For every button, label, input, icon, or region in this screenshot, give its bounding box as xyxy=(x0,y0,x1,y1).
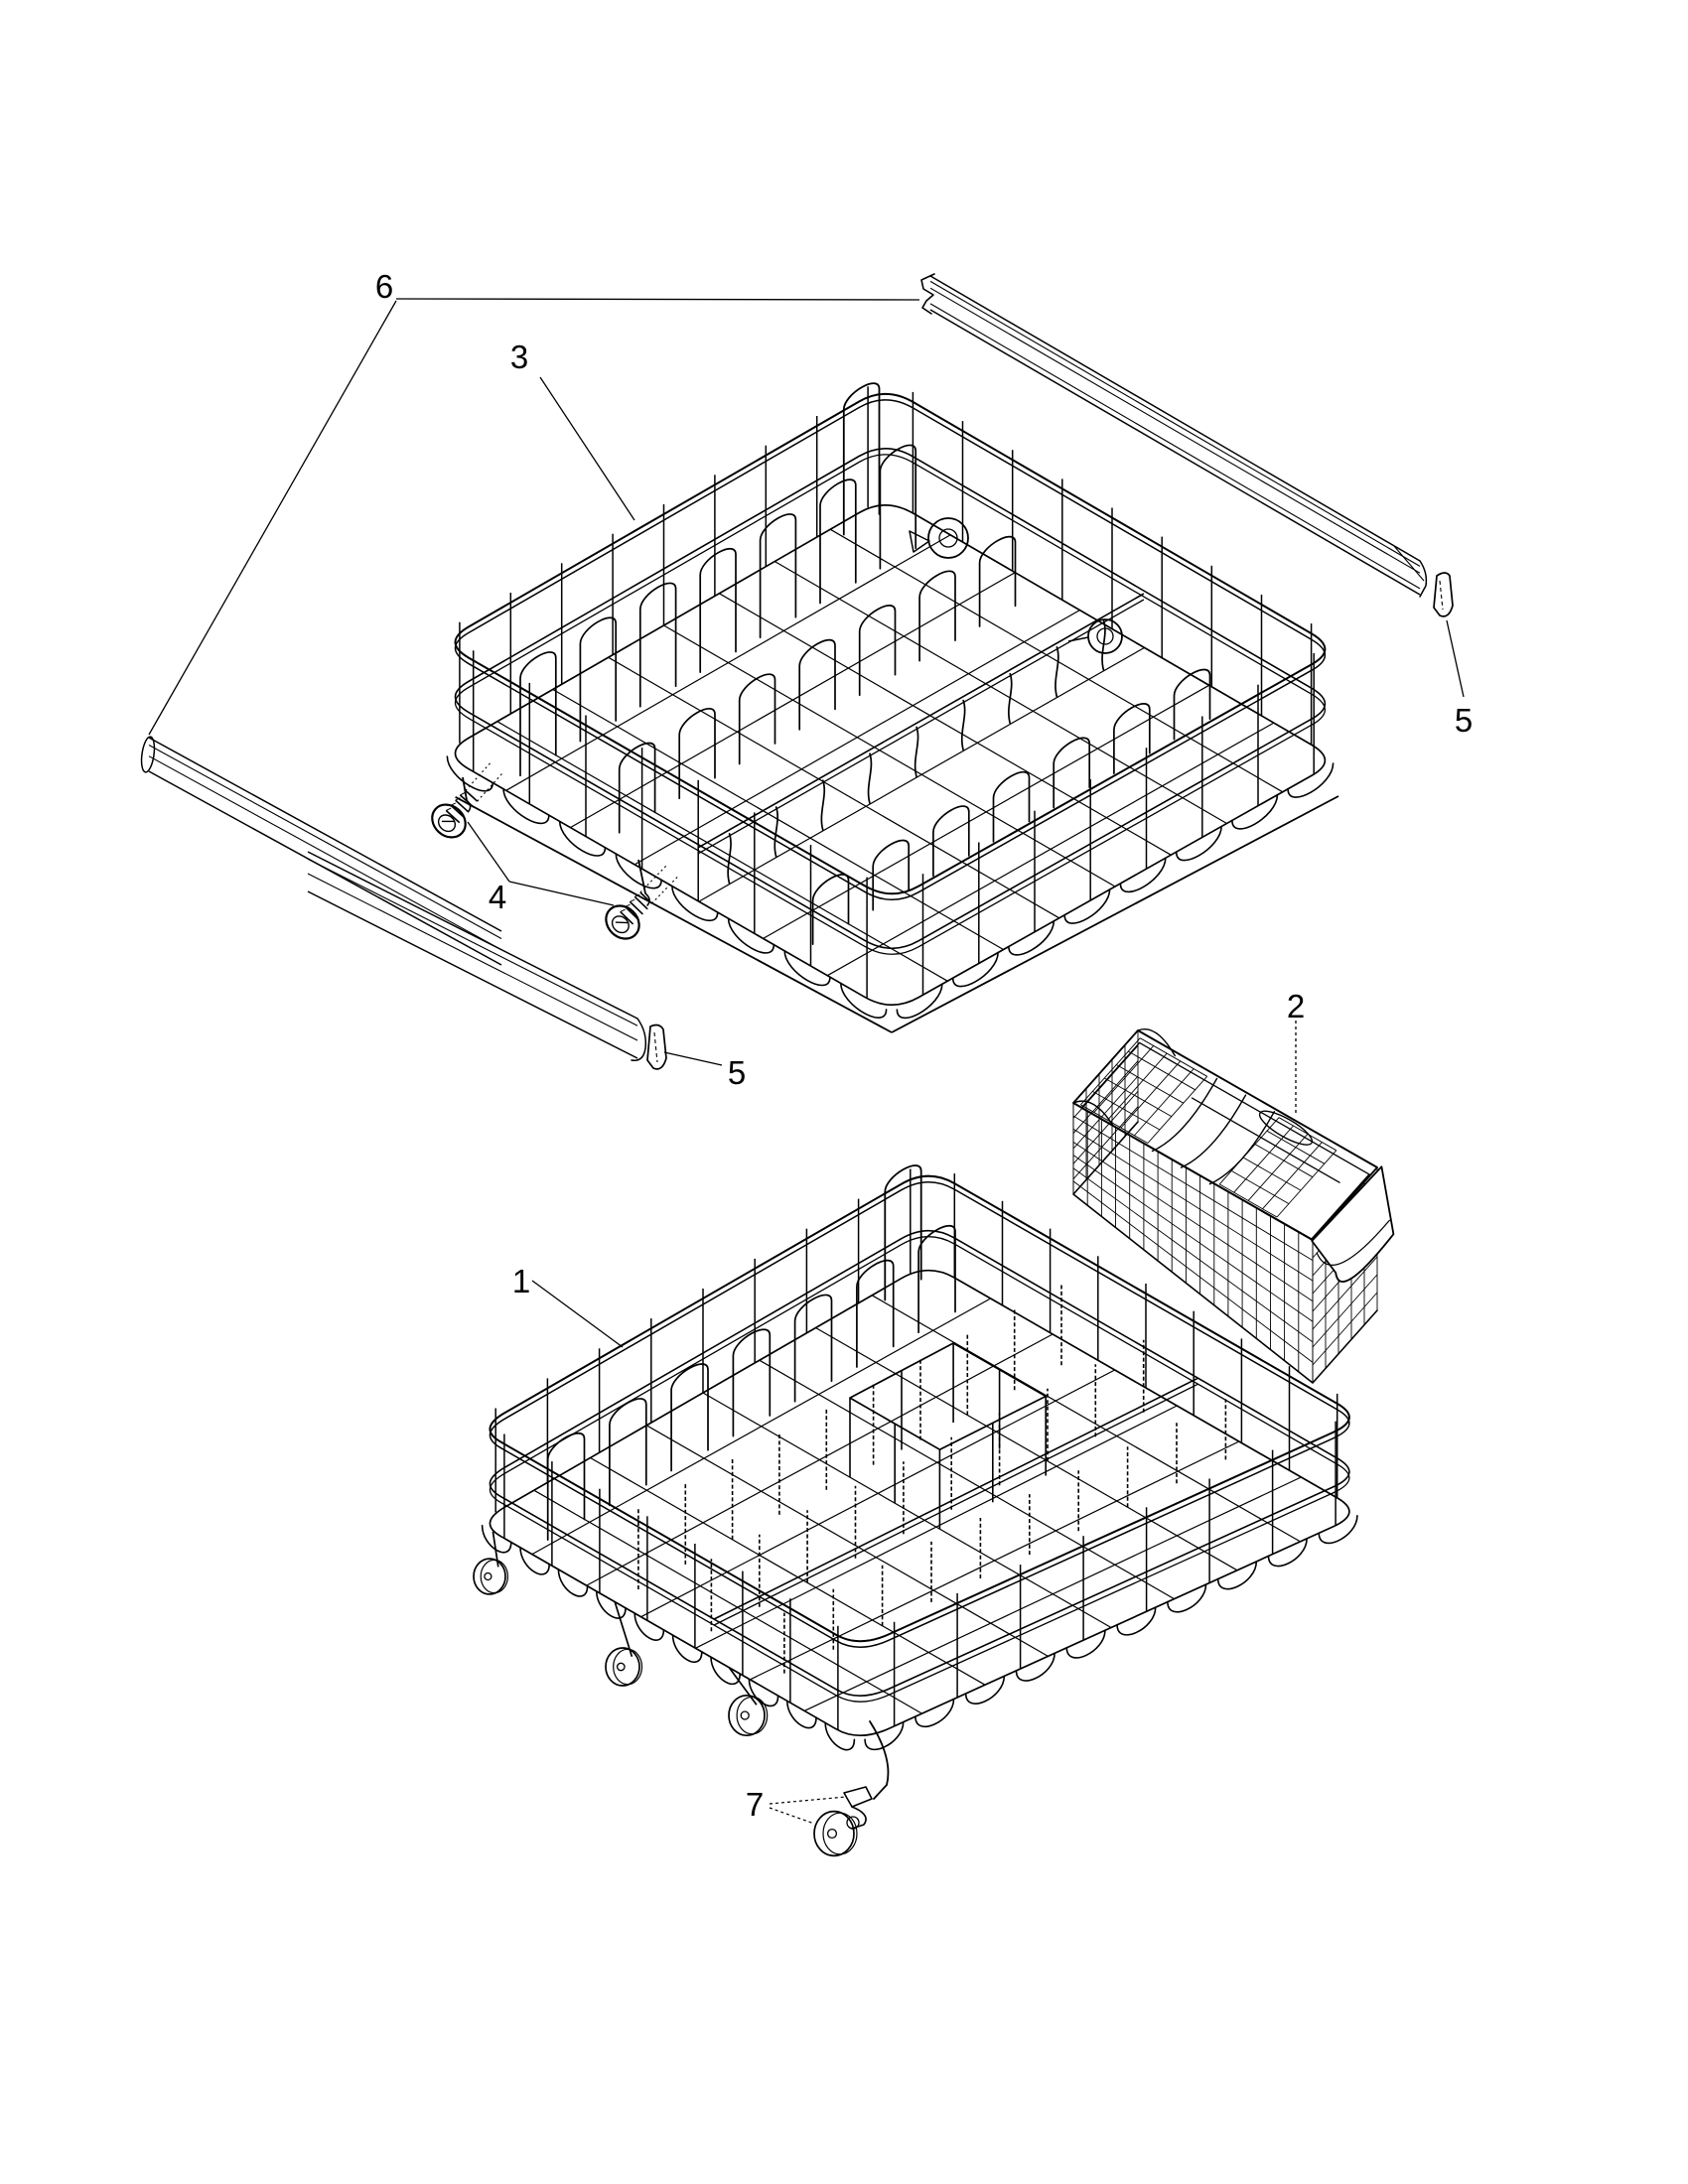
svg-text:4: 4 xyxy=(489,879,506,915)
svg-text:5: 5 xyxy=(1455,702,1473,739)
svg-text:6: 6 xyxy=(375,268,393,305)
svg-text:7: 7 xyxy=(746,1786,764,1823)
svg-text:1: 1 xyxy=(512,1263,530,1299)
svg-text:3: 3 xyxy=(510,339,528,375)
svg-text:2: 2 xyxy=(1287,988,1305,1024)
svg-text:5: 5 xyxy=(728,1054,746,1091)
